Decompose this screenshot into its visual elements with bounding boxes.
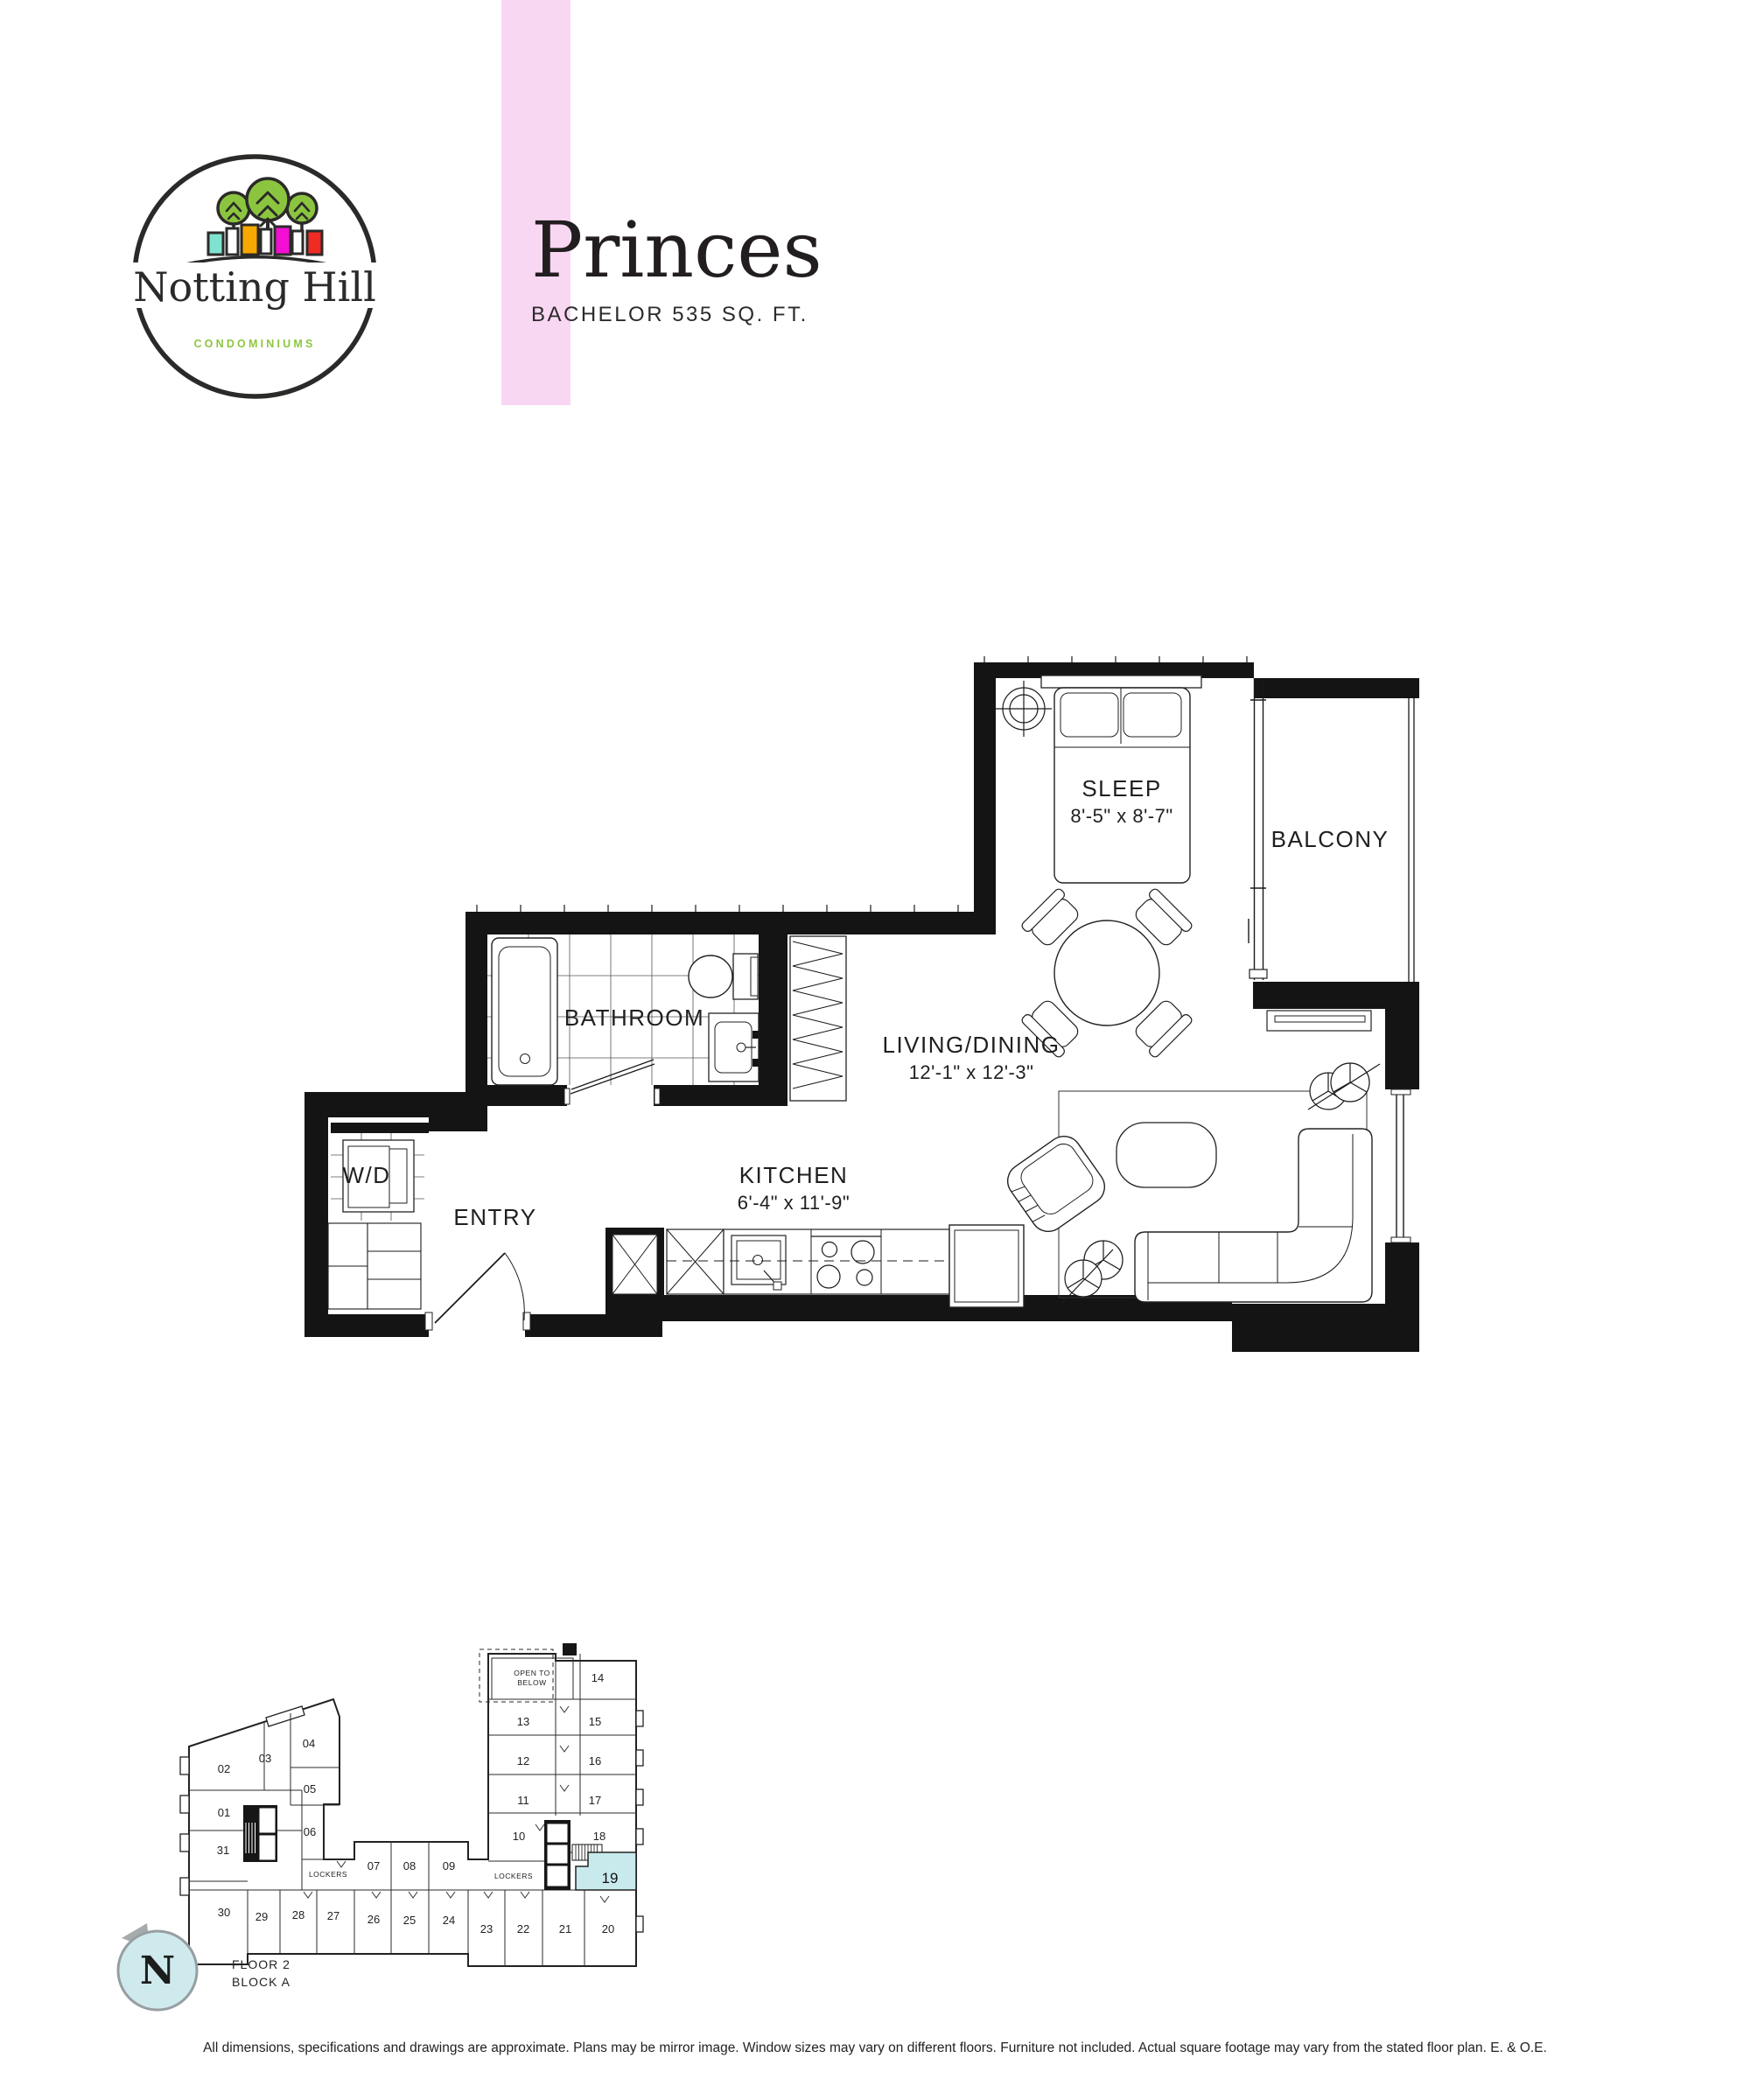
floor-label: FLOOR 2 [232,1957,290,1971]
keyplan-unit-number: 13 [517,1715,529,1728]
keyplan-unit-number: 26 [367,1913,380,1926]
keyplan-unit-number: 01 [218,1806,230,1819]
keyplan: 0102030405060708091011121314151617182021… [105,1636,875,2100]
keyplan-unit-number: 15 [589,1715,601,1728]
balcony-railing-icon [1409,698,1414,982]
keyplan-unit-19-number: 19 [602,1870,619,1886]
living-dining-label: LIVING/DINING [883,1032,1060,1058]
kitchen-dims: 6'-4" x 11'-9" [738,1192,850,1214]
fridge-icon [949,1225,1024,1307]
keyplan-unit-number: 16 [589,1754,601,1767]
logo-tagline: CONDOMINIUMS [193,338,315,350]
wd-label: W/D [342,1162,390,1188]
coffee-table-icon [1116,1123,1216,1187]
keyplan-unit-number: 02 [218,1762,230,1775]
open-to-below-label: OPEN TO [514,1669,549,1677]
pantry-cabinet-icon [605,1228,664,1301]
page-title: Princes [531,210,822,290]
sleep-dims: 8'-5" x 8'-7" [1070,805,1172,827]
elevator-core-icon [243,1805,277,1862]
keyplan-unit-number: 18 [593,1830,605,1843]
bathroom-door-icon [564,1060,660,1104]
logo-houses-icon [208,225,322,255]
entry-label: ENTRY [453,1204,536,1230]
keyplan-unit-number: 12 [517,1754,529,1767]
keyplan-unit-number: 11 [517,1794,529,1807]
lockers-left-label: LOCKERS [309,1870,347,1879]
living-dining-dims: 12'-1" x 12'-3" [909,1061,1034,1083]
living-furniture [1001,887,1380,1303]
kitchen-sink-icon [731,1235,786,1290]
keyplan-unit-number: 05 [304,1782,316,1795]
keyplan-unit-number: 31 [217,1844,229,1857]
keyplan-unit-number: 17 [589,1794,601,1807]
kitchen-fixtures [605,1225,1024,1307]
block-label: BLOCK A [232,1975,290,1989]
keyplan-unit-number: 25 [403,1914,416,1927]
keyplan-unit-number: 14 [591,1671,604,1684]
keyplan-unit-number: 03 [259,1752,271,1765]
keyplan-unit-number: 22 [517,1922,529,1935]
floorplan-sheet: Notting Hill CONDOMINIUMS Princes BACHEL… [0,0,1750,2100]
brand-logo: Notting Hill CONDOMINIUMS [118,140,391,411]
accent-band [501,0,570,405]
entry-door-icon [425,1253,530,1330]
compass-north-letter: N [140,1949,175,1993]
bathtub-icon [492,938,557,1085]
notting-hill-logo-icon: Notting Hill CONDOMINIUMS [118,140,391,411]
floor-lamp-icon [1062,1241,1123,1303]
keyplan-unit-number: 28 [292,1908,304,1921]
balcony-door-window-icon [1249,678,1267,980]
unit-floorplan: SLEEP 8'-5" x 8'-7" BALCONY LIVING/DININ… [289,643,1470,1413]
keyplan-unit-number: 27 [327,1909,339,1922]
keyplan-unit-number: 20 [602,1922,614,1935]
keyplan-unit-number: 10 [513,1830,525,1843]
living-window-icon [1391,1089,1410,1242]
keyplan-unit-number: 04 [303,1737,315,1750]
open-to-below-label2: BELOW [517,1678,546,1687]
disclaimer-text: All dimensions, specifications and drawi… [0,2040,1750,2056]
keyplan-unit-number: 09 [443,1859,455,1872]
title-block: Princes BACHELOR 535 SQ. FT. [531,210,822,327]
keyplan-unit-number: 30 [218,1906,230,1919]
kitchen-label: KITCHEN [739,1162,849,1188]
keyplan-unit-number: 21 [559,1922,571,1935]
compass-icon: N [118,1923,197,2010]
floor-lamp-icon [1308,1063,1380,1109]
bathroom-label: BATHROOM [564,1004,704,1031]
keyplan-unit-number: 06 [304,1825,316,1838]
closet-icon [790,936,846,1101]
sleep-label: SLEEP [1081,775,1161,801]
keyplan-unit-number: 07 [367,1859,380,1872]
keyplan-unit-number: 08 [403,1859,416,1872]
ceiling-light-icon [996,681,1052,737]
lockers-right-label: LOCKERS [494,1872,533,1880]
armchair-icon [1001,1130,1111,1238]
upper-cabinet-icon [667,1229,724,1294]
keyplan-unit-number: 23 [480,1922,493,1935]
vanity-sink-icon [709,1013,759,1081]
logo-trees-icon [218,178,317,233]
keyplan-unit-number: 29 [255,1910,268,1923]
balcony-label: BALCONY [1271,826,1389,852]
entry-shelves-icon [328,1223,421,1309]
page-subtitle: BACHELOR 535 SQ. FT. [531,303,822,327]
logo-wordmark: Notting Hill [133,263,376,311]
keyplan-unit-number: 24 [443,1914,455,1927]
media-console-icon [1267,1011,1371,1031]
toilet-icon [689,954,758,999]
